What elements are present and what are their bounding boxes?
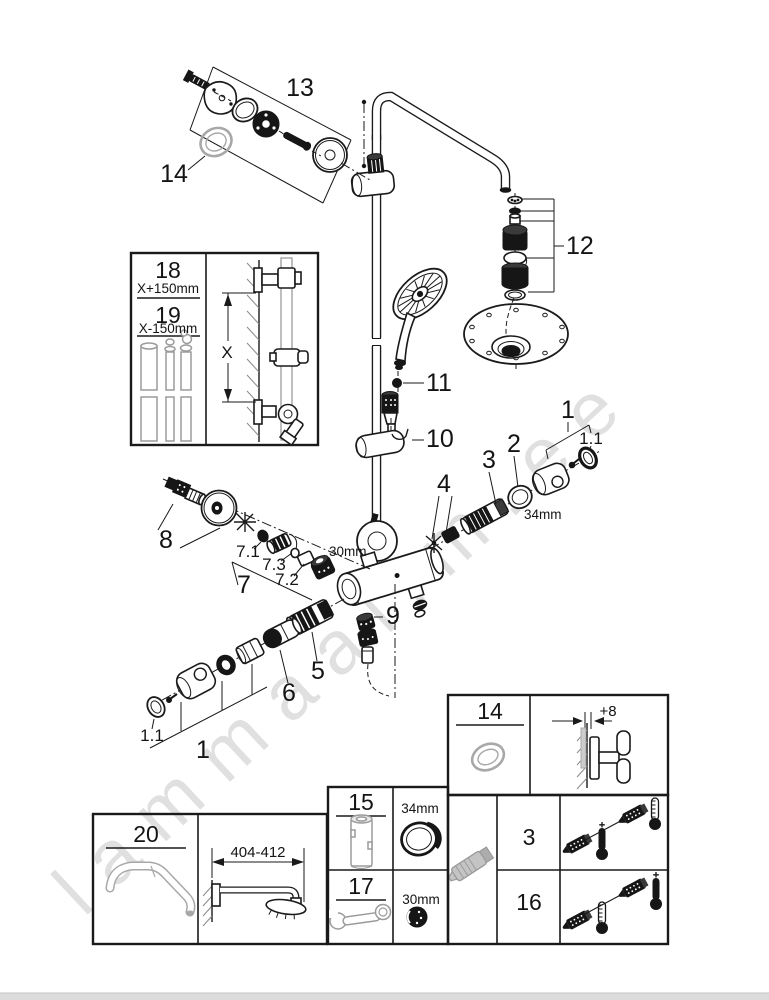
box-tools-row2-size: 30mm	[402, 892, 440, 907]
callout-9: 9	[386, 602, 400, 630]
callout-5: 5	[311, 657, 325, 685]
box-valve-row2-number: 16	[516, 889, 542, 915]
callout-11: 11	[426, 369, 452, 397]
dim-30mm: 30mm	[329, 544, 367, 559]
callout-14: 14	[160, 160, 188, 188]
callout-6: 6	[282, 679, 296, 707]
callout-10: 10	[426, 425, 454, 453]
box-seal-number: 14	[477, 698, 503, 724]
callout-2: 2	[507, 430, 521, 458]
callout-13: 13	[286, 74, 314, 102]
callout-7-2: 7.2	[275, 570, 299, 589]
inset-x-label: X	[221, 343, 232, 362]
wall-seal-ring-14	[188, 123, 236, 170]
inset-dim-18: X+150mm	[137, 281, 199, 296]
head-shower-assembly-12	[464, 193, 568, 372]
valve-variant-box	[446, 795, 668, 944]
callout-1-1-left: 1.1	[140, 726, 164, 745]
dim-34mm: 34mm	[524, 507, 562, 522]
spare-parts-diagram-page: lammaailm.ee	[0, 0, 769, 1000]
box-tools-row2-number: 17	[348, 873, 374, 899]
box-arm-range: 404-412	[230, 844, 285, 861]
parts-diagram: lammaailm.ee	[0, 0, 769, 1000]
callout-1-left: 1	[196, 736, 210, 764]
callout-1-1-right: 1.1	[579, 429, 603, 448]
callout-7: 7	[237, 571, 251, 599]
box-valve-row1-number: 3	[523, 824, 536, 850]
box-seal-offset: +8	[599, 703, 616, 720]
callout-12: 12	[566, 232, 594, 260]
callout-8: 8	[159, 526, 173, 554]
inset-dim-19: X-150mm	[139, 321, 198, 336]
page-footer-strip	[0, 993, 769, 1000]
box-arm-number: 20	[133, 821, 159, 847]
box-tools-row1-size: 34mm	[401, 801, 439, 816]
callout-4: 4	[437, 470, 451, 498]
box-tools-row1-number: 15	[348, 789, 374, 815]
callout-7-1: 7.1	[236, 542, 260, 561]
inset-part-18: 18	[155, 257, 181, 283]
callout-1-right: 1	[561, 396, 575, 424]
callout-3: 3	[482, 446, 496, 474]
